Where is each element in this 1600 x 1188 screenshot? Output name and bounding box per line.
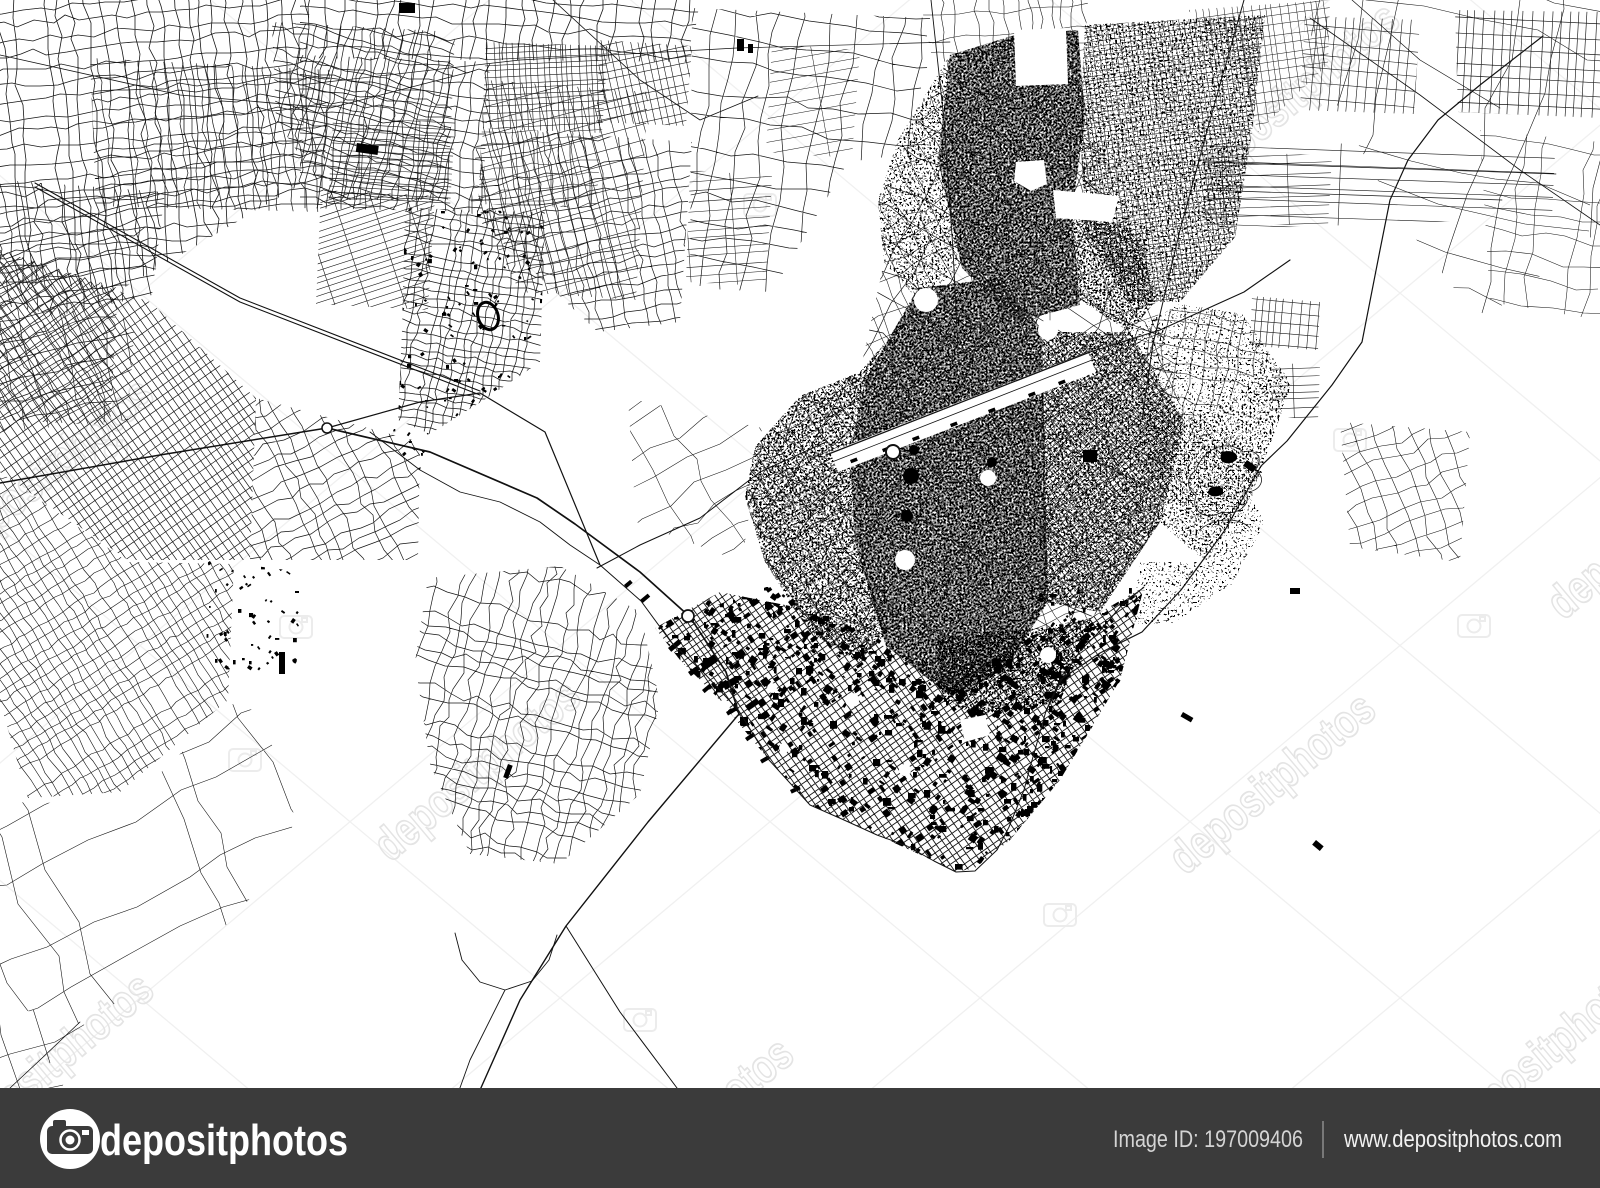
svg-text:www.depositphotos.com: www.depositphotos.com	[1343, 1126, 1562, 1153]
svg-text:Image ID: 197009406: Image ID: 197009406	[1113, 1126, 1303, 1153]
svg-text:depositphotos: depositphotos	[100, 1116, 348, 1165]
